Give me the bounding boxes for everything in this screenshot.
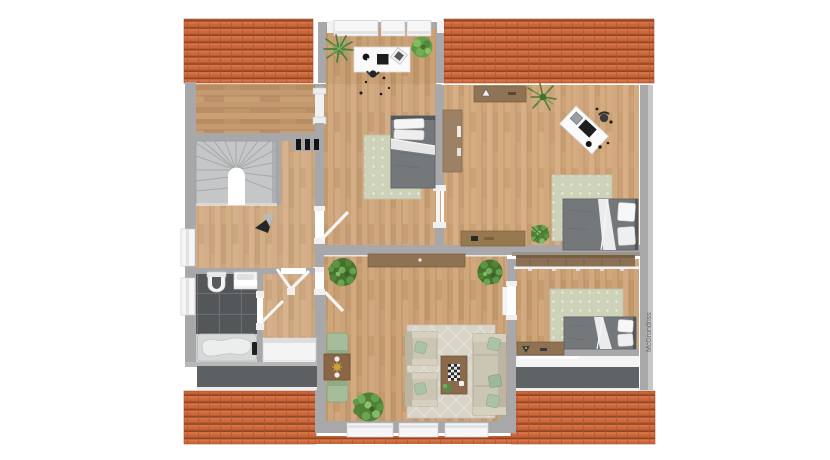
svg-text:McGrundriss: McGrundriss <box>646 312 653 352</box>
